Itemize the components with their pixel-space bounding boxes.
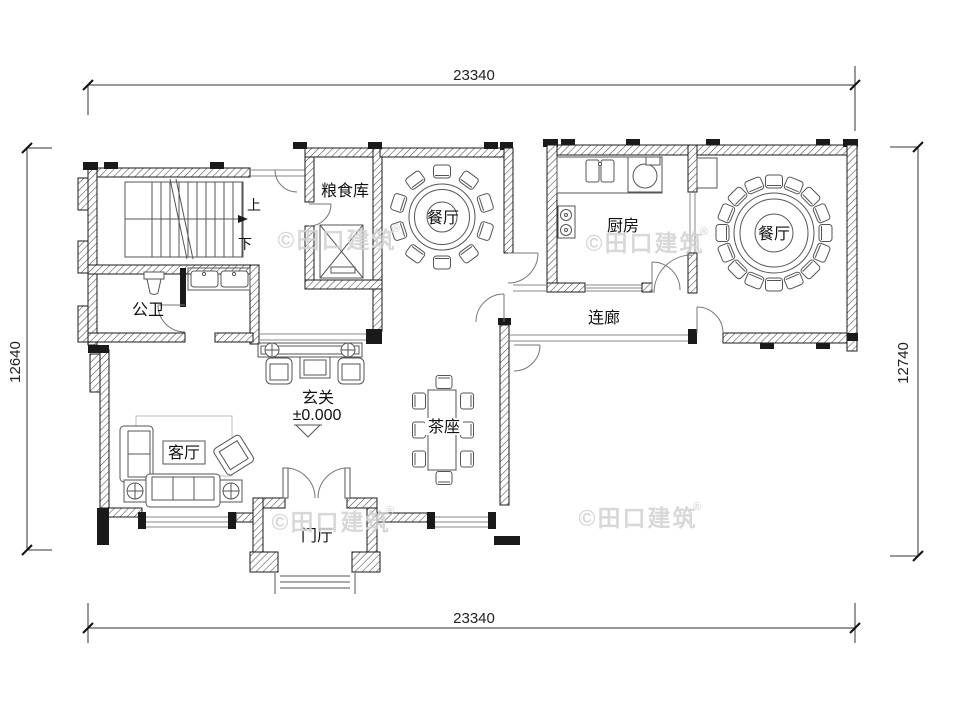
corridor [508,285,688,371]
dining-cabinet [697,158,717,188]
watermark: ©田口建筑 ® [278,223,401,253]
svg-text:©田口建筑: ©田口建筑 [579,505,698,531]
kitchen-door [652,262,680,290]
side-table [124,480,146,502]
kitchen-dining-door [654,255,692,293]
side-table [220,480,242,502]
svg-text:®: ® [386,505,394,517]
armchair [212,434,255,477]
dim-right-label: 12740 [895,342,912,384]
hall-chair [266,358,292,384]
hall-corridor-door-lower [476,294,504,322]
room-label-living: 客厅 [168,444,200,462]
hall-corridor-door-upper [508,253,538,283]
room-label-tea-seat: 茶座 [428,418,460,436]
watermarks: ©田口建筑 ® ©田口建筑 ® ©田口建筑 ® ©田口建筑 ® [272,223,709,535]
dining-corridor-door [697,307,723,333]
kitchen-counter-appliance [628,157,662,192]
watermark: ©田口建筑 ® [579,501,702,531]
svg-text:®: ® [392,223,400,235]
room-label-corridor: 连廊 [588,309,620,327]
dimension-left: 12640 [7,143,52,555]
living-room-label-box: 客厅 [163,441,205,464]
floor-plan-drawing: 23340 23340 12640 12740 [0,0,961,722]
svg-text:©田口建筑: ©田口建筑 [278,227,397,253]
entry-console [258,343,364,384]
corridor-side-door [514,345,540,371]
gas-stove [558,206,575,238]
sofa-three-seat [146,474,220,507]
planter [341,343,355,357]
entry-steps [275,573,355,594]
dim-bottom-label: 23340 [453,610,495,627]
stairs-up-label: 上 [247,197,261,213]
hall-chair [338,358,364,384]
grain-storage-door [309,204,331,226]
planter [265,343,279,357]
tea-seat-label: 茶座 [425,418,463,436]
entry-level-value: ±0.000 [293,407,342,424]
stair-direction-arrow [196,215,248,223]
stair-lobby-door [275,170,297,192]
svg-text:©田口建筑: ©田口建筑 [272,509,391,535]
kitchen-sink [586,160,614,182]
room-label-dining-left: 餐厅 [427,209,459,227]
dimension-right: 12740 [890,142,923,561]
watermark: ©田口建筑 ® [586,226,709,256]
sofa-two-seat [120,426,153,482]
room-label-bathroom: 公卫 [132,302,164,319]
dimension-top: 23340 [83,66,860,131]
svg-text:®: ® [700,226,708,238]
front-double-door [283,468,350,498]
stairs-down-label: 下 [238,236,252,252]
dim-top-label: 23340 [453,67,495,84]
staircase [125,179,248,259]
room-label-entry-hall: 玄关 [302,389,334,407]
dim-left-label: 12640 [7,341,24,383]
toilet [144,272,164,295]
floor-plan-page: 23340 23340 12640 12740 [0,0,961,722]
dimension-bottom: 23340 [83,603,860,643]
room-label-grain-storage: 粮食库 [321,182,369,200]
level-marker [294,425,322,437]
room-label-dining-right: 餐厅 [758,225,790,243]
watermark: ©田口建筑 ® [272,505,395,535]
bathroom-fixtures [144,268,250,295]
svg-text:®: ® [693,501,701,513]
svg-text:©田口建筑: ©田口建筑 [586,230,705,256]
